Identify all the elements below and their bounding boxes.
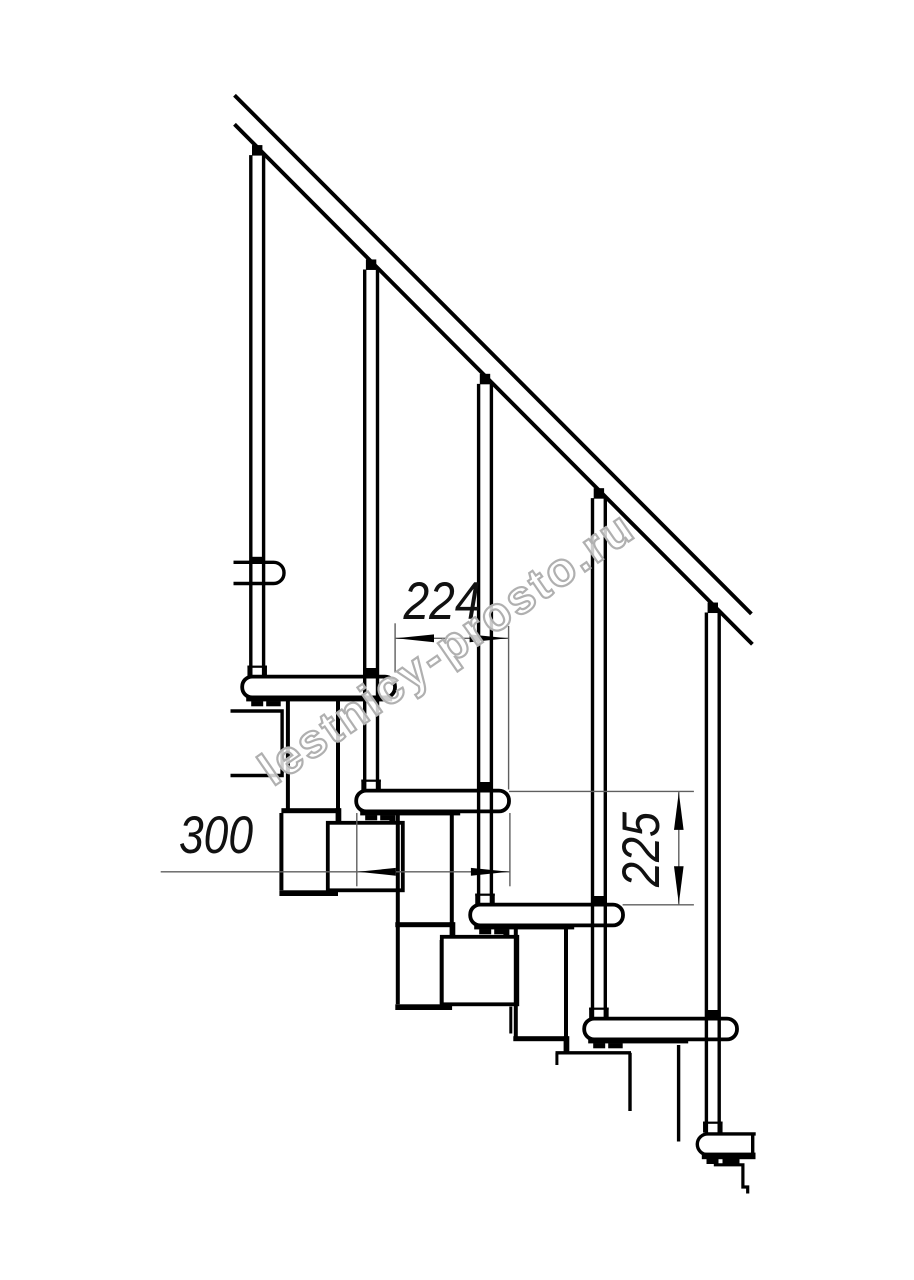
svg-text:225: 225: [612, 812, 671, 888]
svg-text:300: 300: [179, 806, 253, 865]
